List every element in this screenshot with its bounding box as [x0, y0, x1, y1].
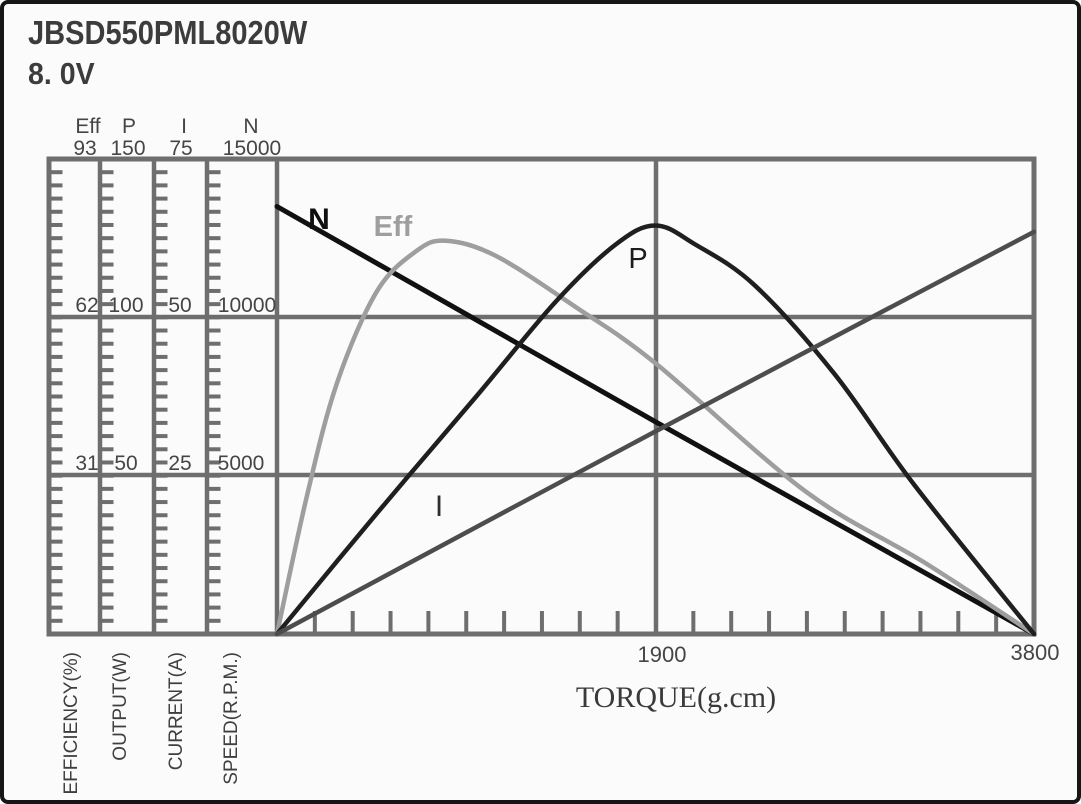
x-tick-3800: 3800	[1011, 640, 1060, 665]
vertical-axis-unit-labels: EFFICIENCY(%) OUTPUT(W) CURRENT(A) SPEED…	[61, 652, 242, 795]
title-block: JBSD550PML8020W 8. 0V	[28, 14, 345, 92]
performance-chart: Eff P I N 93 150 75 15000 62 100 50 1000…	[4, 4, 1081, 804]
efficiency-curve-label: Eff	[374, 211, 413, 243]
p-tick-top: 150	[110, 137, 145, 160]
x-tick-1900: 1900	[638, 642, 687, 667]
n-tick-mid: 10000	[218, 294, 276, 317]
n-tick-low: 5000	[218, 452, 265, 475]
p-axis-name: P	[122, 115, 136, 138]
page-title: JBSD550PML8020W	[28, 14, 307, 52]
eff-tick-low: 31	[75, 452, 98, 475]
i-tick-low: 25	[168, 452, 191, 475]
i-tick-top: 75	[169, 137, 192, 160]
eff-axis-name: Eff	[75, 115, 100, 138]
eff-tick-mid: 62	[75, 294, 98, 317]
p-tick-low: 50	[114, 452, 137, 475]
current-axis-unit: CURRENT(A)	[166, 652, 187, 770]
n-axis-name: N	[243, 115, 258, 138]
power-curve-label: P	[628, 243, 647, 275]
n-tick-top: 15000	[223, 137, 281, 160]
voltage-subtitle: 8. 0V	[28, 56, 320, 92]
eff-tick-top: 93	[73, 137, 96, 160]
speed-axis-unit: SPEED(R.P.M.)	[221, 652, 242, 785]
motor-datasheet-page: JBSD550PML8020W 8. 0V Eff P I N 93 150 7…	[0, 0, 1081, 804]
i-axis-name: I	[181, 115, 187, 138]
i-tick-mid: 50	[168, 294, 191, 317]
grid-layer	[49, 159, 1034, 634]
axis-header-labels: Eff P I N 93 150 75 15000	[73, 115, 281, 160]
x-axis-title: TORQUE(g.cm)	[576, 681, 776, 714]
efficiency-axis-unit: EFFICIENCY(%)	[61, 652, 82, 795]
p-tick-mid: 100	[108, 294, 143, 317]
speed-curve-label: N	[308, 203, 330, 236]
current-curve-label: I	[435, 490, 443, 523]
output-axis-unit: OUTPUT(W)	[110, 652, 131, 761]
x-axis-labels: 1900 3800 TORQUE(g.cm)	[576, 640, 1060, 714]
